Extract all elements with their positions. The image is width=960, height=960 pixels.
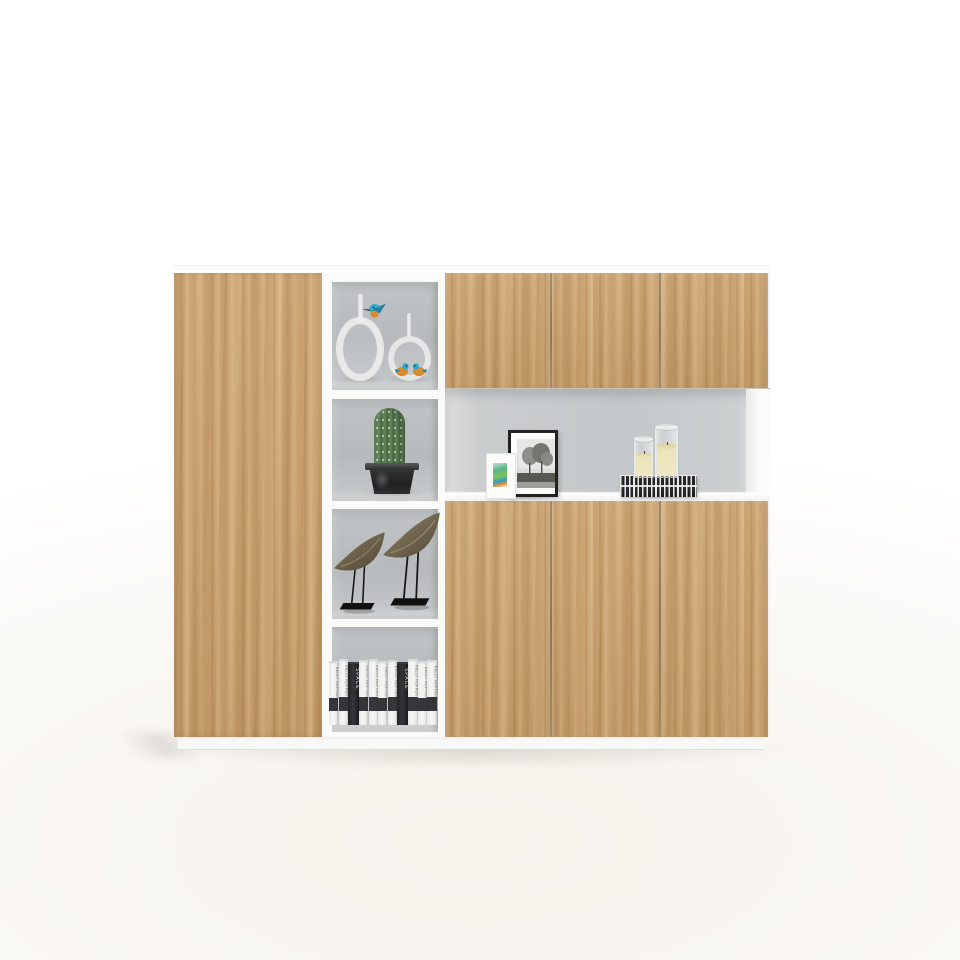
door-seam [550, 501, 552, 737]
book-spine: KELLY HOPPEN [427, 660, 436, 725]
abstract-art [493, 463, 507, 487]
right-top-door-row [445, 273, 770, 389]
bottom-door-2 [552, 501, 659, 737]
bottom-door-1 [445, 501, 550, 737]
product-photo-stage: KELLY HOPPENKELLY HOPPENSPACEKELLY HOPPE… [0, 0, 960, 960]
candle-holder-small [633, 437, 654, 478]
top-door-3 [661, 273, 768, 388]
bird-sculpture-small [331, 523, 387, 615]
top-door-2 [552, 273, 659, 388]
left-tall-door [174, 273, 322, 737]
cabinet [173, 266, 770, 749]
book-spine: KELLY HOPPEN [378, 661, 387, 725]
top-door-1 [445, 273, 550, 388]
cabinet-plinth [178, 737, 764, 750]
book-spine: KELLY HOPPEN [418, 661, 427, 725]
right-section [445, 273, 770, 737]
door-seam [659, 501, 661, 737]
book-spine: KELLY HOPPEN [339, 659, 348, 725]
book-spine: KELLY HOPPEN [408, 659, 417, 725]
carcass-side-edge [768, 501, 770, 737]
book-spine: KELLY HOPPEN [329, 661, 338, 725]
right-bottom-door-row [445, 501, 770, 737]
candle-holder-tall [654, 425, 679, 478]
oval-hoop-ornament [336, 317, 384, 381]
book-spine: SPACE [397, 662, 408, 725]
candle-wax [657, 444, 676, 476]
book-row: KELLY HOPPENKELLY HOPPENSPACEKELLY HOPPE… [329, 657, 437, 725]
cactus [374, 408, 405, 466]
bottom-door-3 [661, 501, 768, 737]
stacked-books [620, 475, 697, 497]
door-seam [550, 273, 552, 388]
cactus-pot-highlight [374, 470, 390, 490]
bird-pair-figurine [394, 360, 428, 378]
candle-wax [636, 453, 651, 476]
niche-right-wall [746, 389, 770, 501]
book-spine: KELLY HOPPEN [359, 660, 368, 725]
art-frame-small [486, 453, 516, 499]
landscape-photo [517, 439, 555, 488]
book-spine: SPACE [348, 662, 359, 725]
carcass-side-edge [768, 273, 770, 388]
door-seam [659, 273, 661, 388]
book-spine: KELLY HOPPEN [369, 659, 378, 725]
book-spine: KELLY HOPPEN [388, 660, 397, 725]
bird-sculpture-large [381, 505, 443, 615]
kingfisher-figurine [362, 301, 386, 321]
cactus-pot-rim [365, 463, 419, 470]
